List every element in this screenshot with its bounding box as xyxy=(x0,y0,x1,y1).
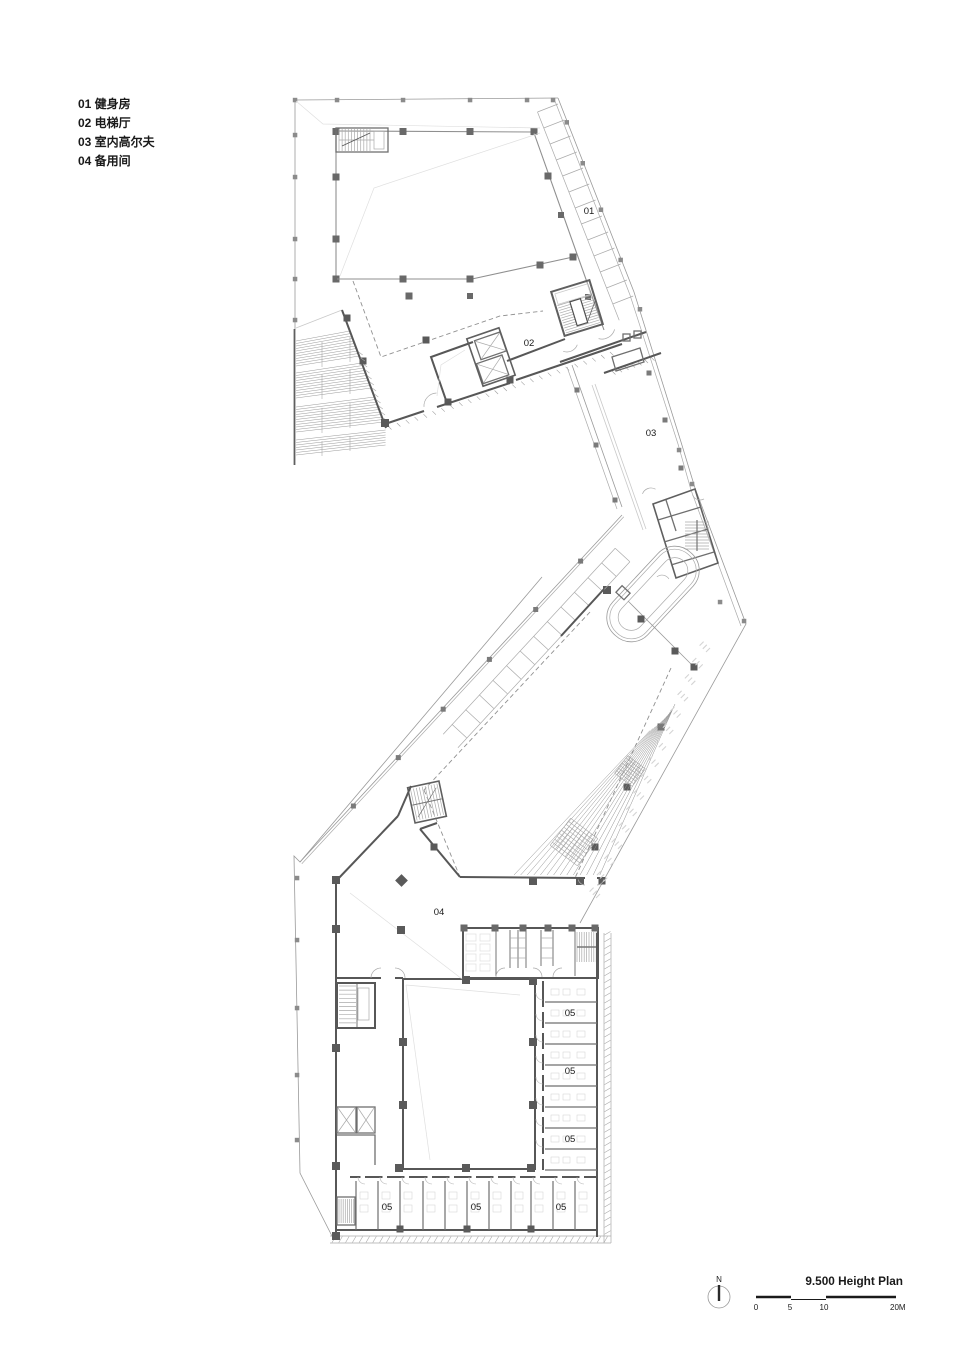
svg-text:05: 05 xyxy=(565,1066,576,1077)
svg-text:05: 05 xyxy=(565,1008,576,1019)
svg-text:N: N xyxy=(716,1275,722,1284)
svg-text:05: 05 xyxy=(471,1202,482,1213)
svg-text:02: 02 xyxy=(524,338,535,349)
svg-text:02 电梯厅: 02 电梯厅 xyxy=(78,115,131,130)
svg-text:5: 5 xyxy=(788,1303,793,1312)
svg-text:01 健身房: 01 健身房 xyxy=(78,96,131,111)
svg-text:04 备用间: 04 备用间 xyxy=(78,153,131,168)
svg-text:03: 03 xyxy=(646,428,657,439)
svg-text:10: 10 xyxy=(820,1303,829,1312)
svg-text:05: 05 xyxy=(556,1202,567,1213)
svg-text:05: 05 xyxy=(565,1134,576,1145)
svg-text:01: 01 xyxy=(584,206,595,217)
svg-text:0: 0 xyxy=(754,1303,759,1312)
svg-text:05: 05 xyxy=(382,1202,393,1213)
svg-text:04: 04 xyxy=(434,907,445,918)
svg-text:9.500 Height Plan: 9.500 Height Plan xyxy=(805,1274,903,1288)
svg-text:03 室内高尔夫: 03 室内高尔夫 xyxy=(78,134,156,149)
svg-text:20M: 20M xyxy=(890,1303,906,1312)
